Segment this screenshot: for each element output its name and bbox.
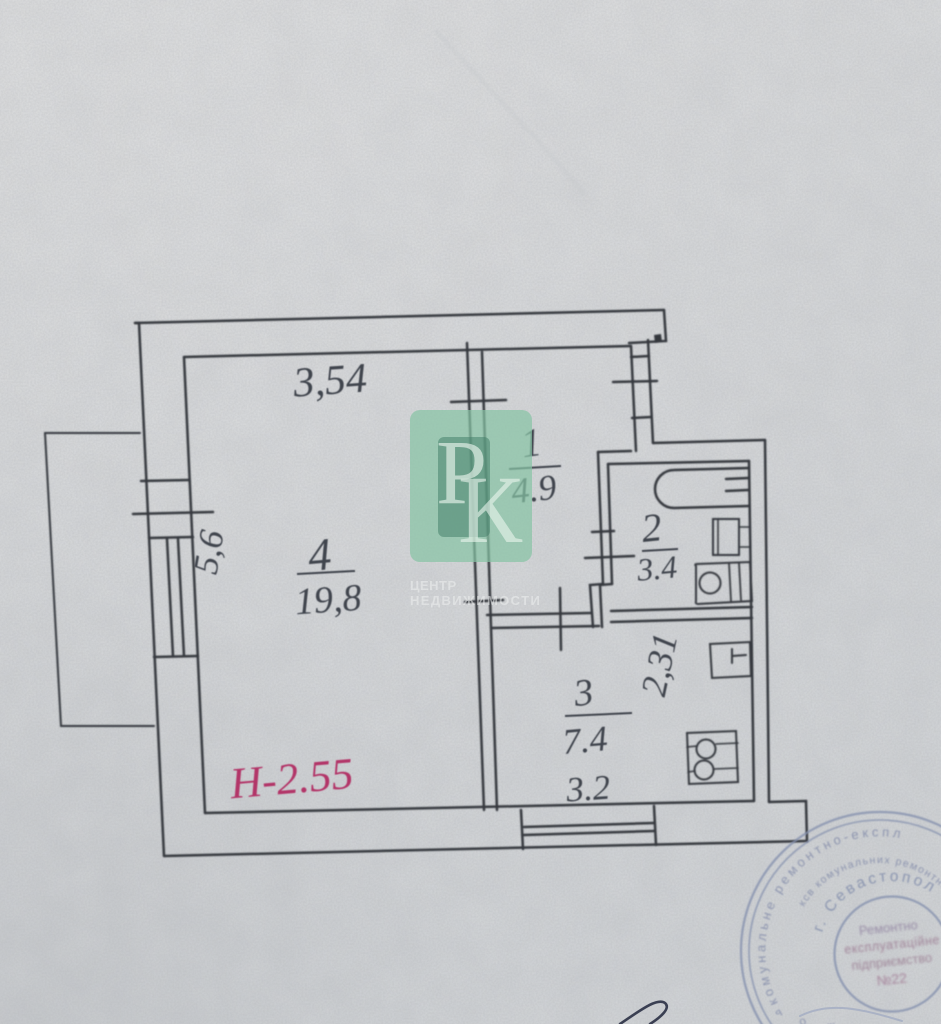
svg-text:5,6: 5,6 [186, 527, 232, 577]
svg-text:3.2: 3.2 [564, 768, 611, 810]
svg-text:3,54: 3,54 [291, 356, 369, 407]
svg-text:7.4: 7.4 [561, 718, 609, 762]
svg-text:ЦЕНТР: ЦЕНТР [410, 578, 457, 593]
svg-text:К: К [458, 456, 523, 563]
svg-text:НЕДВИЖИМОСТИ: НЕДВИЖИМОСТИ [410, 593, 541, 608]
svg-text:№22: №22 [876, 969, 908, 988]
svg-text:19,8: 19,8 [294, 577, 363, 624]
svg-text:3.4: 3.4 [635, 548, 679, 587]
